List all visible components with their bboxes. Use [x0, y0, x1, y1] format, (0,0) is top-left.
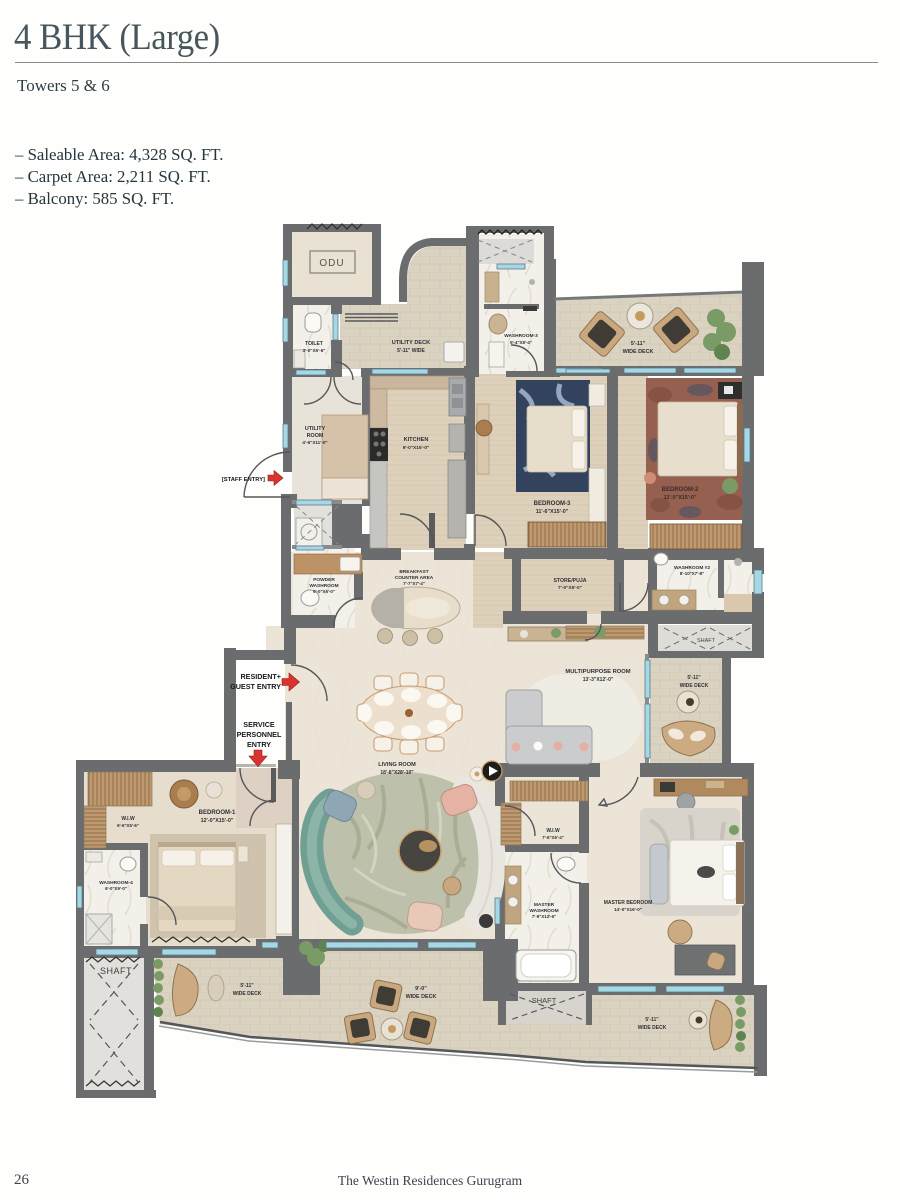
svg-text:5'-11": 5'-11" — [645, 1017, 659, 1023]
svg-text:6'-0"X9'-0": 6'-0"X9'-0" — [105, 886, 127, 891]
svg-text:SERVICE: SERVICE — [243, 720, 275, 729]
svg-text:WIDE DECK: WIDE DECK — [233, 991, 262, 997]
svg-text:12'-0"X15'-0": 12'-0"X15'-0" — [664, 495, 697, 501]
svg-text:PERSONNEL: PERSONNEL — [237, 730, 282, 739]
svg-text:5'-11": 5'-11" — [687, 675, 701, 681]
svg-text:6'-6"X5'-6": 6'-6"X5'-6" — [117, 823, 139, 828]
svg-text:9'-0": 9'-0" — [415, 986, 427, 992]
svg-text:5'-11": 5'-11" — [240, 983, 254, 989]
svg-text:ENTRY: ENTRY — [247, 740, 271, 749]
svg-text:7'-9"X13'-6": 7'-9"X13'-6" — [532, 914, 556, 919]
svg-text:KITCHEN: KITCHEN — [404, 437, 429, 443]
svg-text:18'-8"X28'-10": 18'-8"X28'-10" — [380, 770, 414, 776]
svg-text:MULTIPURPOSE ROOM: MULTIPURPOSE ROOM — [565, 669, 630, 675]
svg-text:7'-7"X7'-4": 7'-7"X7'-4" — [403, 581, 425, 586]
svg-text:UTILITY DECK: UTILITY DECK — [392, 340, 430, 346]
svg-text:7'-6"X6'-4": 7'-6"X6'-4" — [542, 835, 564, 840]
svg-text:11'-6"X15'-0": 11'-6"X15'-0" — [536, 509, 569, 515]
svg-text:RESIDENT+: RESIDENT+ — [240, 672, 281, 681]
svg-text:WASHROOM-3: WASHROOM-3 — [504, 333, 538, 339]
svg-text:6'-0"X6'-0": 6'-0"X6'-0" — [313, 589, 335, 594]
svg-text:4'-6"X11'-0": 4'-6"X11'-0" — [302, 440, 327, 445]
svg-text:BEDROOM-1: BEDROOM-1 — [199, 810, 236, 816]
svg-text:WIDE DECK: WIDE DECK — [623, 349, 654, 355]
svg-text:W.I.W: W.I.W — [546, 828, 560, 834]
svg-text:BEDROOM-3: BEDROOM-3 — [534, 501, 571, 507]
svg-text:GUEST ENTRY: GUEST ENTRY — [230, 682, 281, 691]
svg-text:ODU: ODU — [319, 258, 344, 269]
svg-text:SHAFT: SHAFT — [532, 996, 557, 1005]
svg-text:LIVING ROOM: LIVING ROOM — [378, 762, 416, 768]
svg-text:7'-0"X5'-0": 7'-0"X5'-0" — [558, 585, 582, 591]
svg-text:BREAKFAST: BREAKFAST — [399, 569, 428, 575]
svg-text:TOILET: TOILET — [305, 341, 323, 347]
svg-text:SHAFT: SHAFT — [100, 966, 132, 976]
svg-text:13'-3"X12'-0": 13'-3"X12'-0" — [583, 677, 614, 683]
svg-text:SHAFT: SHAFT — [697, 638, 716, 644]
svg-text:W.I.W: W.I.W — [121, 816, 135, 822]
svg-text:[STAFF ENTRY]: [STAFF ENTRY] — [222, 477, 265, 483]
svg-text:STORE/PUJA: STORE/PUJA — [553, 578, 586, 584]
svg-text:WIDE DECK: WIDE DECK — [638, 1025, 667, 1031]
svg-text:3'-0"X5'-6": 3'-0"X5'-6" — [303, 348, 326, 353]
svg-text:UTILITY: UTILITY — [305, 426, 326, 432]
svg-text:5'-4"X8'-4": 5'-4"X8'-4" — [510, 340, 532, 345]
svg-text:5'-11" WIDE: 5'-11" WIDE — [397, 348, 425, 354]
svg-text:WIDE DECK: WIDE DECK — [680, 683, 709, 689]
svg-text:9'-0"X15'-0": 9'-0"X15'-0" — [403, 445, 430, 451]
svg-text:12'-0"X15'-0": 12'-0"X15'-0" — [201, 818, 234, 824]
svg-text:ROOM: ROOM — [307, 433, 324, 439]
svg-text:POWDER: POWDER — [313, 577, 335, 583]
svg-text:14'-0"X16'-0": 14'-0"X16'-0" — [614, 907, 642, 912]
svg-text:5'-11": 5'-11" — [631, 341, 646, 347]
svg-text:BEDROOM-2: BEDROOM-2 — [662, 487, 699, 493]
svg-text:WIDE DECK: WIDE DECK — [406, 994, 437, 1000]
svg-text:MASTER BEDROOM: MASTER BEDROOM — [604, 900, 653, 906]
svg-text:8'-10"X7'-8": 8'-10"X7'-8" — [680, 571, 704, 576]
svg-text:MASTER: MASTER — [534, 902, 555, 908]
